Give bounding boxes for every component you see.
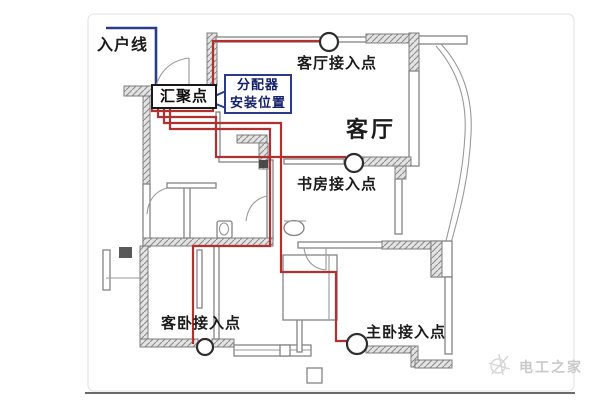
floor-plan-canvas: 入户线 汇聚点 分配器 安装位置 客厅 客厅接入点 书房接入点 客卧接入点 主卧… bbox=[0, 0, 600, 400]
access-point-living-circle bbox=[320, 33, 338, 51]
ap-master-bedroom-label: 主卧接入点 bbox=[366, 321, 446, 342]
hub-box: 汇聚点 bbox=[151, 84, 217, 109]
entry-line-label: 入户线 bbox=[97, 31, 148, 55]
ap-living-label: 客厅接入点 bbox=[297, 52, 377, 73]
access-point-master-circle bbox=[347, 334, 367, 354]
distributor-callout-line2: 安装位置 bbox=[226, 94, 290, 112]
living-room-label: 客厅 bbox=[346, 112, 396, 144]
access-point-guest-circle bbox=[197, 339, 213, 355]
distributor-callout-line1: 分配器 bbox=[226, 76, 290, 94]
ap-study-label: 书房接入点 bbox=[297, 173, 377, 194]
balcony-rail bbox=[103, 250, 110, 290]
access-point-study-circle bbox=[345, 154, 363, 172]
distributor-callout: 分配器 安装位置 bbox=[224, 74, 292, 114]
exterior-unit bbox=[307, 368, 322, 383]
electrician-home-logo-icon bbox=[489, 354, 510, 375]
watermark-text: 电工之家 bbox=[519, 357, 583, 377]
sink-fixture bbox=[284, 221, 304, 236]
ap-guest-bedroom-label: 客卧接入点 bbox=[161, 312, 241, 333]
